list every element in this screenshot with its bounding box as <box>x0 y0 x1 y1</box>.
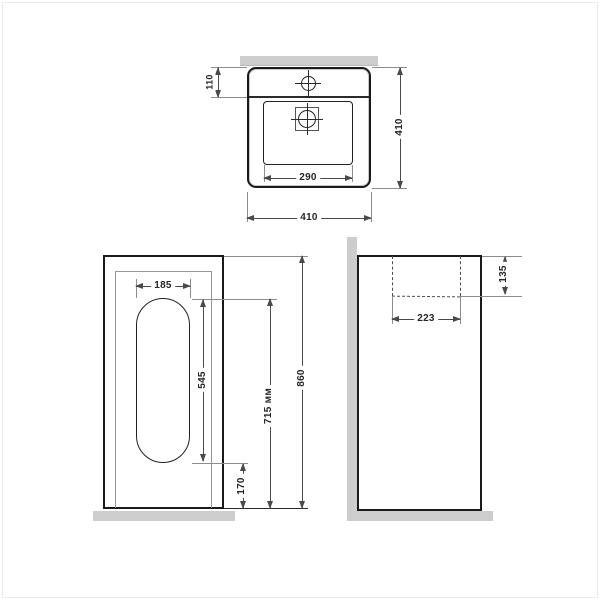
plan-dim-110-line <box>218 68 219 97</box>
plan-dim-290-label: 290 <box>296 172 320 184</box>
side-dim-223-label: 223 <box>414 313 438 325</box>
front-dim-860-label: 860 <box>296 366 308 390</box>
front-cutout <box>136 298 190 463</box>
front-dim-170-label: 170 <box>236 474 248 498</box>
plan-wall-strip <box>240 56 378 66</box>
plan-dim-410-bottom-label: 410 <box>297 212 321 224</box>
side-basin-hidden-right <box>460 256 461 296</box>
front-dim-185-label: 185 <box>151 280 175 292</box>
front-dim-715-label: 715 мм <box>263 385 275 427</box>
side-dim-135-label: 135 <box>498 262 510 286</box>
washbasin-technical-drawing: 110 410 290 410 185 545 <box>0 0 600 600</box>
plan-dim-410-right-label: 410 <box>394 115 406 139</box>
front-dim-545-label: 545 <box>197 368 209 392</box>
side-outline <box>357 255 482 511</box>
side-ext-basin-level <box>460 296 522 297</box>
plan-ledge-line <box>249 96 369 98</box>
plan-dim-110-label: 110 <box>205 71 216 92</box>
side-basin-hidden-left <box>392 256 393 296</box>
side-floor-strip <box>347 511 493 521</box>
front-ext-top <box>224 256 308 257</box>
front-floor-strip <box>93 511 235 521</box>
front-floor-ext <box>224 508 308 510</box>
side-wall-strip <box>347 237 357 521</box>
